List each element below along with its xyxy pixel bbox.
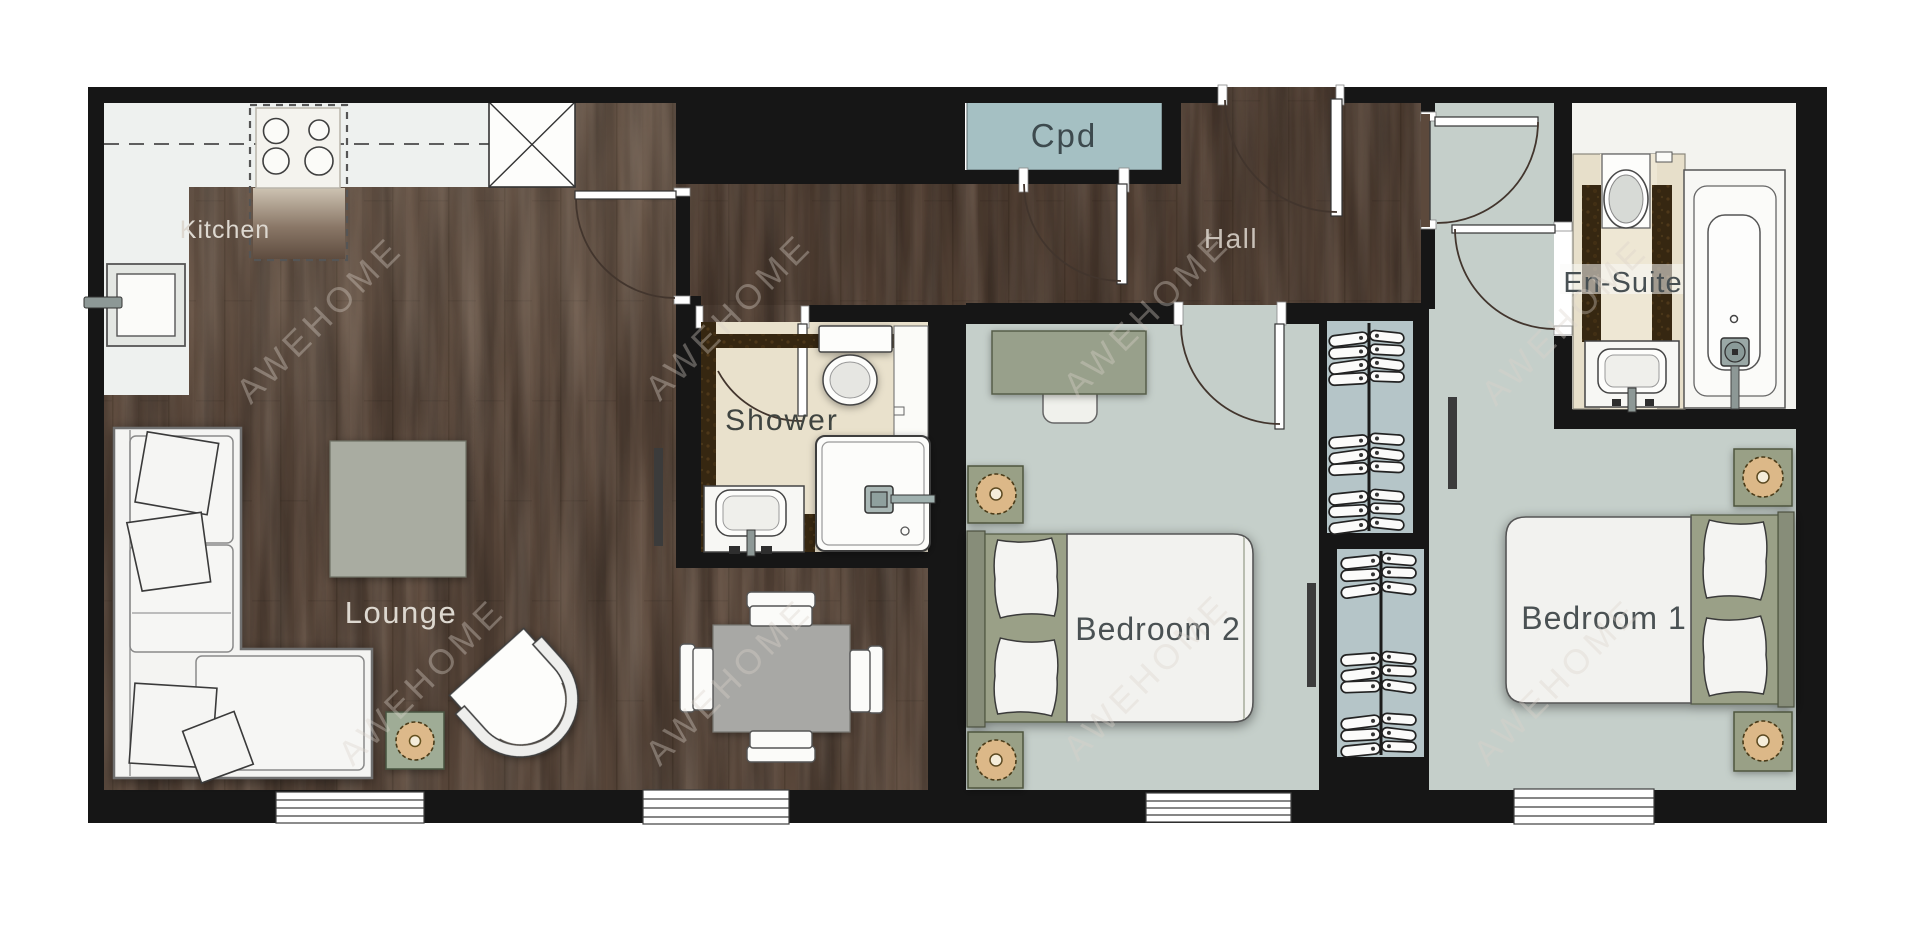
svg-text:Kitchen: Kitchen: [180, 216, 270, 244]
svg-text:Cpd: Cpd: [1031, 117, 1098, 154]
svg-text:Lounge: Lounge: [345, 595, 457, 630]
svg-text:Shower: Shower: [725, 404, 839, 437]
